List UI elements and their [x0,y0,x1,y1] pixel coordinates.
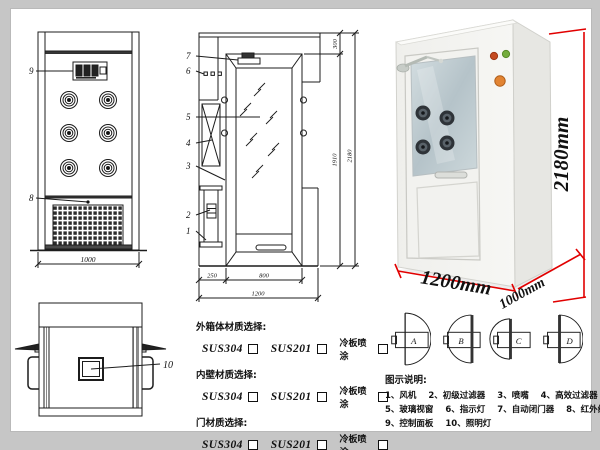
material-checkbox[interactable] [378,440,388,450]
indicator-lights-icon [204,72,221,75]
callout-4: 4 [186,138,191,148]
legend-item: 7、自动闭门器 [497,405,554,415]
material-group-title: 外箱体材质选择: [196,319,388,333]
right-handle-icon [142,357,153,389]
front-view-drawing: 9 8 1000 [28,16,178,281]
material-checkbox[interactable] [248,392,258,402]
dim-1000: 1000 [81,255,96,264]
material-option-label: SUS304 [202,439,243,450]
callout-7: 7 [186,51,191,61]
callout-9: 9 [29,66,34,76]
callout-1: 1 [186,226,191,236]
orange-button [495,76,505,86]
legend-item: 8、红外线感应器 [566,405,600,415]
fan-icon [202,104,220,166]
legend: 图示说明: 1、风机 2、初级过滤器 3、喷嘴 4、高效过滤器 5、玻璃视窗 6… [385,372,591,431]
legend-item: 2、初级过滤器 [428,391,485,401]
material-checkbox[interactable] [248,344,258,354]
material-option-label: SUS304 [202,391,243,403]
dim-300: 300 [332,38,339,50]
legend-item: 3、喷嘴 [497,391,528,401]
left-handle-icon [28,357,39,389]
callout-8: 8 [29,193,34,203]
page-frame: 9 8 1000 [0,0,600,450]
legend-title: 图示说明: [385,372,591,386]
callout-3: 3 [185,161,191,171]
dim-1200: 1200 [252,291,266,298]
material-checkbox[interactable] [317,392,327,402]
material-option-label: 冷板喷涂 [340,384,374,410]
material-checkbox[interactable] [317,344,327,354]
air-grille-icon [53,205,123,245]
top-view-drawing: 10 [13,300,213,440]
material-checkbox[interactable] [248,440,258,450]
legend-item: 6、指示灯 [445,405,485,415]
dim-800: 800 [259,273,270,280]
dim-250: 250 [207,273,218,280]
callout-6: 6 [186,66,191,76]
legend-item: 5、玻璃视窗 [385,405,433,415]
red-indicator-light [490,52,497,59]
legend-item: 10、照明灯 [445,419,491,429]
callout-10: 10 [163,360,173,371]
material-option-label: SUS201 [271,439,312,450]
legend-item: 4、高效过滤器 [541,391,598,401]
photo-dim-height: 2180mm [549,117,573,193]
material-option-label: 冷板喷涂 [340,432,374,450]
material-option-label: SUS304 [202,343,243,355]
callout-5: 5 [186,112,191,122]
door-closer-icon [238,53,260,64]
green-indicator-light [502,50,509,57]
material-option-label: SUS201 [271,343,312,355]
dim-2180: 2180 [347,149,354,163]
section-view-drawing: 7 6 5 4 3 2 1 300 1910 2180 250 800 1200 [172,18,367,308]
dim-1910: 1910 [332,153,339,167]
door-handle-icon [435,172,467,178]
material-checkbox[interactable] [317,440,327,450]
material-group-title: 门材质选择: [196,415,388,429]
material-group-title: 内壁材质选择: [196,367,388,381]
nozzle-icons [61,92,117,177]
material-option-label: SUS201 [271,391,312,403]
drawing-canvas: 9 8 1000 [10,8,592,432]
glass-hatch-icon [240,83,279,178]
door-icon [226,54,302,266]
callout-2: 2 [186,210,191,220]
control-panel-icon [73,62,107,80]
material-selection: 外箱体材质选择: SUS304 SUS201 冷板喷涂 内壁材质选择: SUS3… [196,314,388,450]
legend-item: 1、风机 [385,391,416,401]
cabinet-body-icon [396,20,552,287]
legend-item: 9、控制面板 [385,419,433,429]
product-photo: 2180mm 1200mm 1000mm [365,8,589,338]
material-option-label: 冷板喷涂 [340,336,374,362]
